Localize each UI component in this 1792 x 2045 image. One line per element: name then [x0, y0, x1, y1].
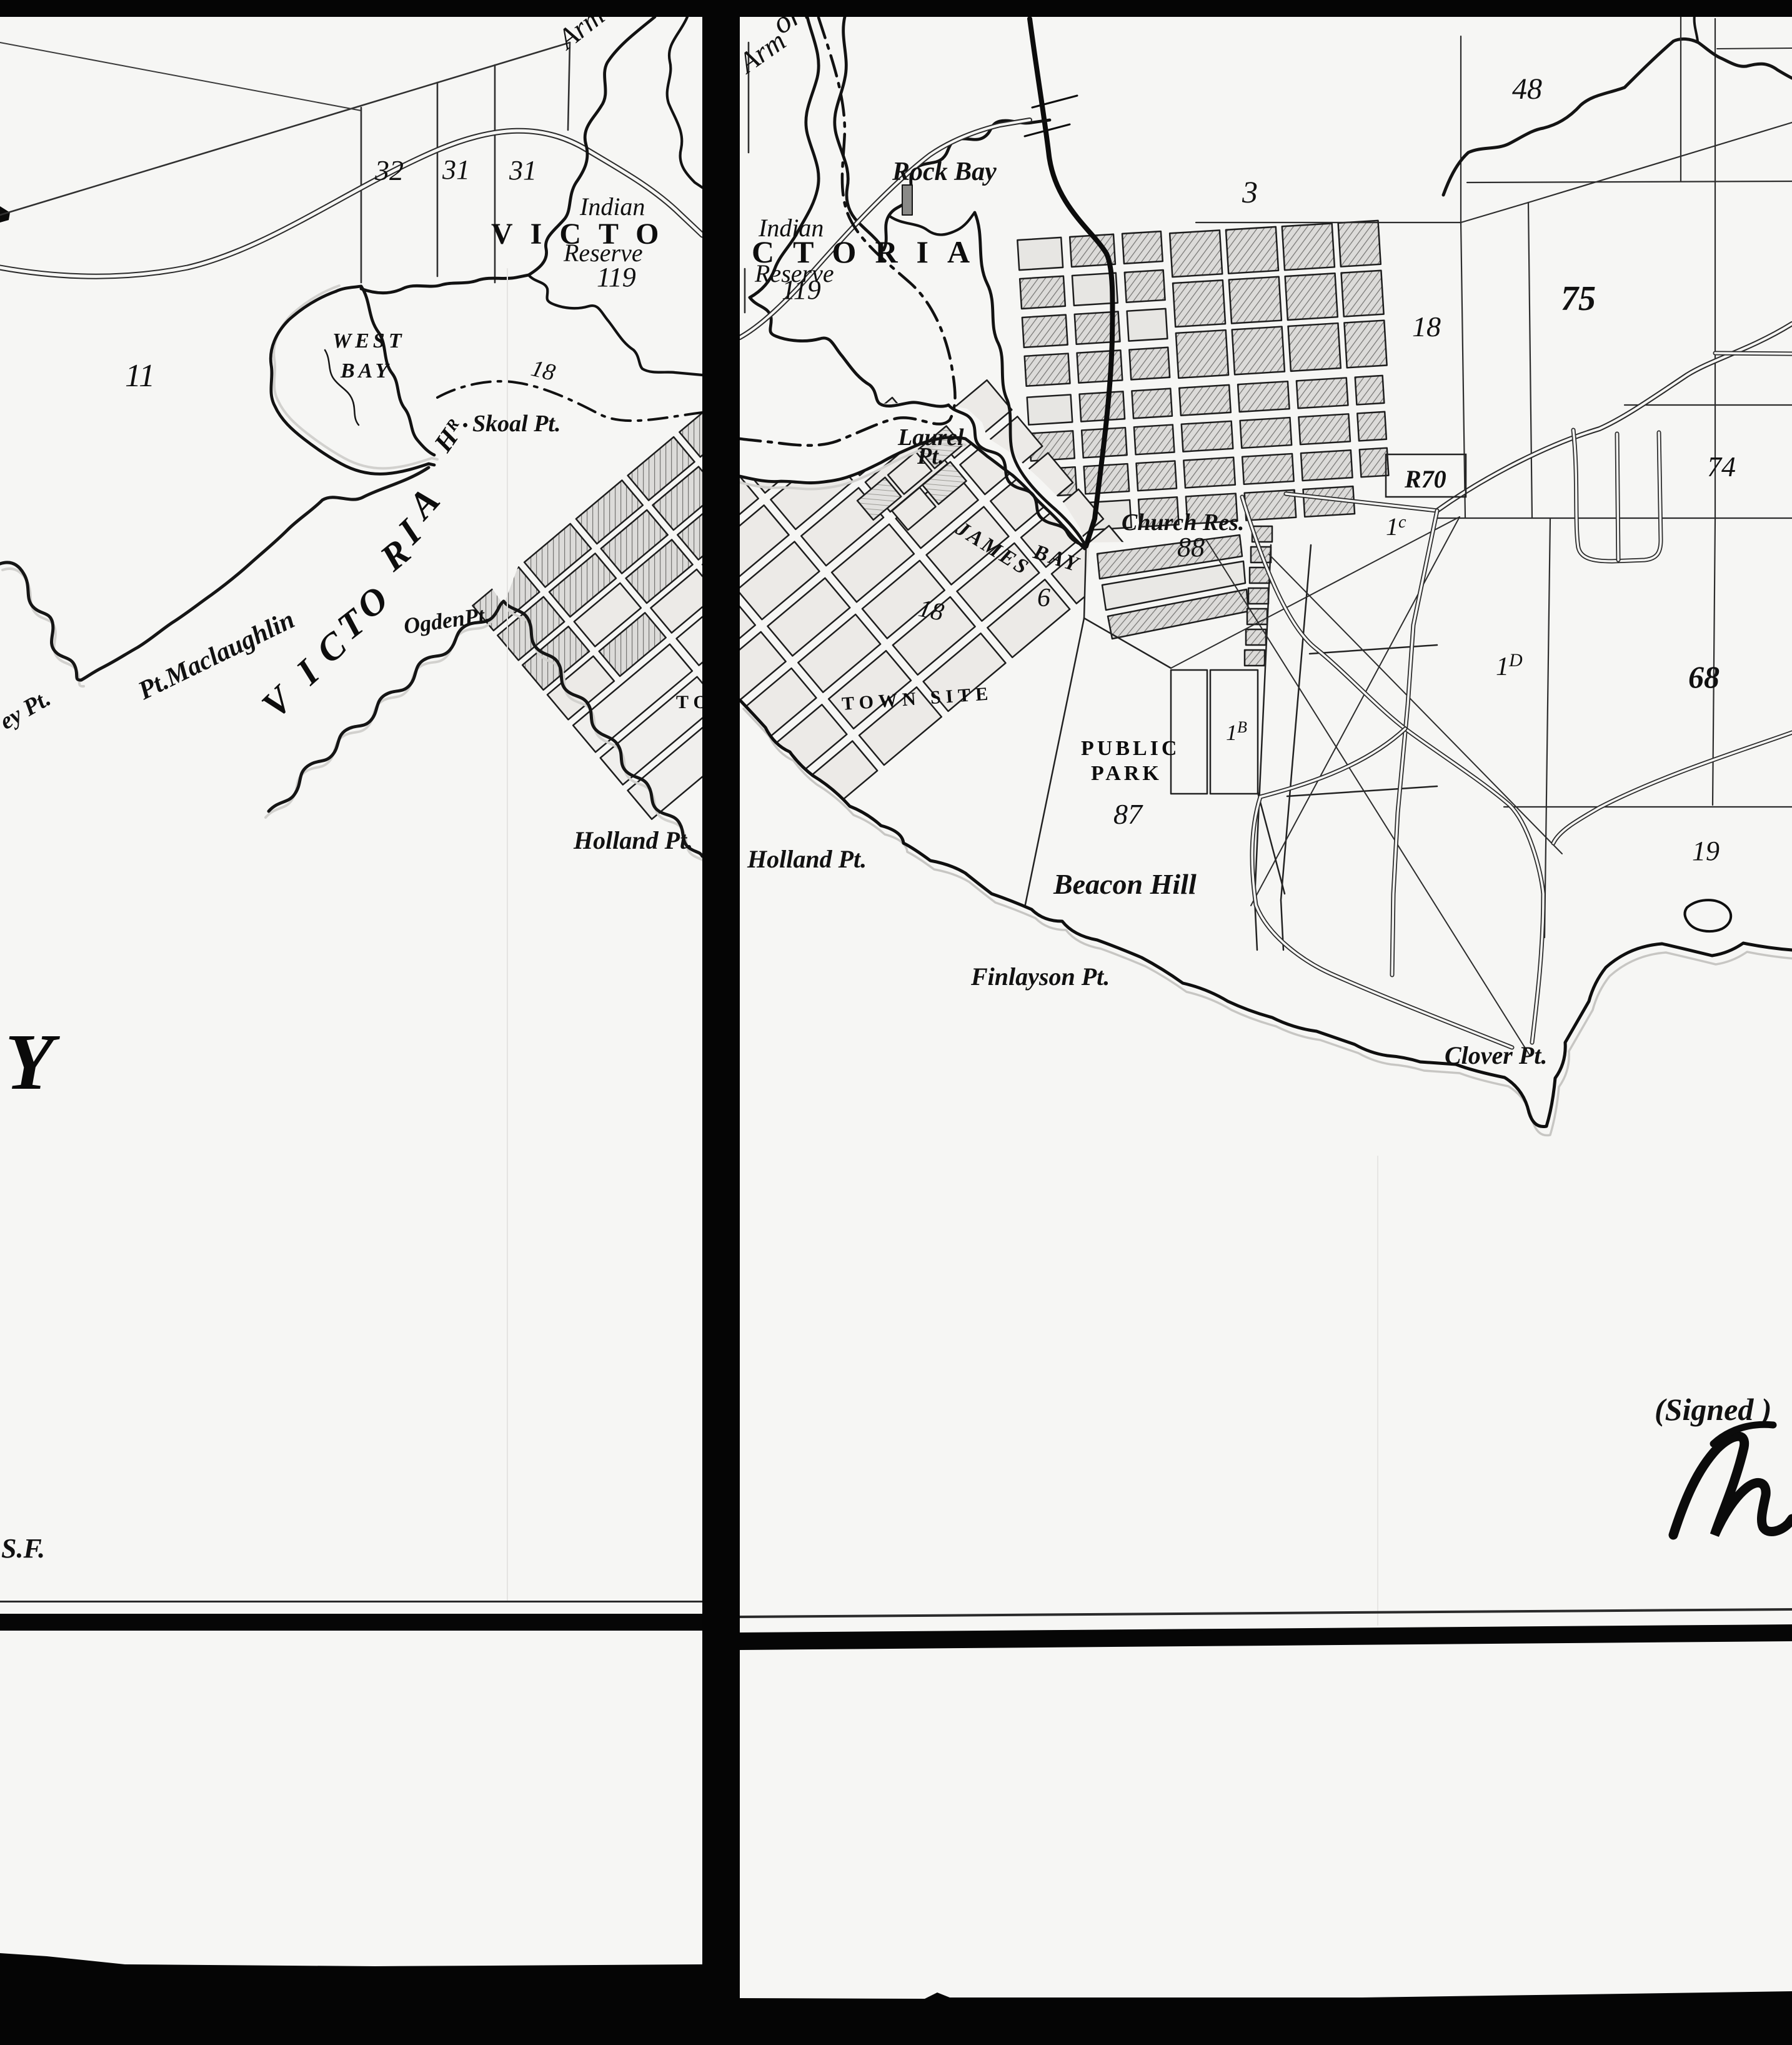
svg-text:6: 6	[1037, 584, 1050, 612]
svg-text:31: 31	[509, 155, 537, 186]
svg-text:74: 74	[1707, 451, 1736, 482]
svg-text:Rock Bay: Rock Bay	[892, 157, 997, 186]
svg-text:87: 87	[1113, 798, 1143, 830]
svg-text:PARK: PARK	[1091, 762, 1162, 785]
svg-text:31: 31	[442, 154, 470, 185]
svg-text:Holland Pt.: Holland Pt.	[573, 826, 693, 854]
svg-text:48: 48	[1512, 72, 1542, 106]
svg-text:88: 88	[1177, 532, 1205, 562]
svg-text:R70: R70	[1404, 465, 1446, 493]
svg-text:Skoal Pt.: Skoal Pt.	[472, 411, 560, 437]
svg-text:19: 19	[1692, 836, 1720, 866]
svg-text:Finlayson Pt.: Finlayson Pt.	[970, 962, 1110, 991]
svg-text:Indian: Indian	[579, 192, 645, 221]
svg-text:119: 119	[597, 262, 636, 292]
svg-text:Holland Pt.: Holland Pt.	[747, 845, 867, 873]
svg-text:Indian: Indian	[758, 214, 824, 242]
svg-text:3: 3	[1242, 174, 1258, 209]
svg-text:PUBLIC: PUBLIC	[1081, 737, 1180, 760]
svg-text:Y: Y	[5, 1017, 60, 1106]
svg-text:32: 32	[374, 154, 404, 186]
svg-text:18: 18	[1412, 311, 1441, 342]
svg-text:Clover Pt.: Clover Pt.	[1445, 1041, 1547, 1069]
svg-text:68: 68	[1688, 659, 1720, 694]
svg-text:119: 119	[782, 274, 821, 305]
svg-text:S.F.: S.F.	[1, 1533, 45, 1564]
svg-text:BAY: BAY	[340, 359, 392, 382]
svg-text:75: 75	[1561, 279, 1596, 318]
svg-text:11: 11	[125, 358, 155, 394]
svg-text:Beacon Hill: Beacon Hill	[1053, 868, 1197, 900]
svg-text:(Signed ): (Signed )	[1655, 1392, 1772, 1427]
svg-text:WEST: WEST	[332, 329, 406, 352]
svg-text:VICTO: VICTO	[491, 217, 677, 251]
svg-text:Pt.: Pt.	[917, 443, 944, 469]
